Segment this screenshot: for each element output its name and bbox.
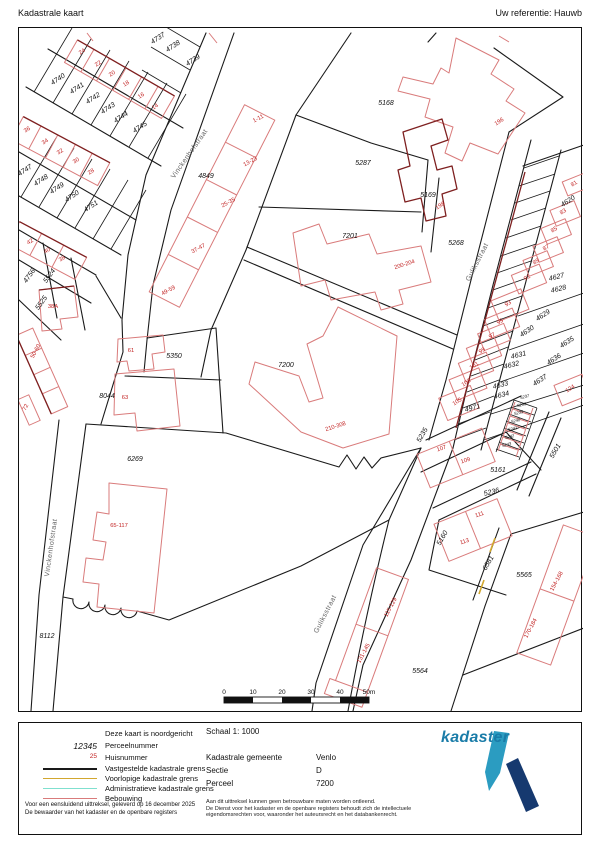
house-number-label: 99 <box>478 347 487 356</box>
parcel-number-label: 4636 <box>546 353 563 367</box>
huisnummer-sample: 25 <box>29 753 97 760</box>
page-title: Kadastrale kaart <box>18 8 84 18</box>
parcel-number-label: 4620 <box>560 195 577 209</box>
house-number-label: 25-35 <box>221 197 237 209</box>
parcel-number-label: 5238 <box>517 401 528 408</box>
administratieve-grens-label: Administratieve kadastrale grens <box>105 784 214 793</box>
cadastral-map-page: Kadastrale kaart Uw referentie: Hauwb <box>0 0 600 845</box>
house-number-label: 91 <box>523 274 532 283</box>
house-number-label: 83 <box>559 208 568 217</box>
parcel-number-label: 4635 <box>559 336 576 350</box>
street-name-label: Guliksstraat <box>465 242 490 282</box>
house-number-label: 111 <box>475 511 485 519</box>
house-number-label: 50-60 <box>30 344 42 360</box>
sectie-label: Sectie <box>206 766 228 775</box>
parcel-number-label: 5161 <box>490 467 506 474</box>
parcel-number-label: 5168 <box>378 100 394 107</box>
parcel-number-label: 5240 <box>511 417 522 424</box>
parcel-number-label: 4738 <box>165 40 182 54</box>
house-number-label: 20 <box>108 70 117 79</box>
sectie-value: D <box>316 766 322 775</box>
buildings-layer <box>19 33 583 707</box>
north-note-label: Deze kaart is noordgericht <box>105 729 193 738</box>
parcel-number-label: 4627 <box>548 272 566 283</box>
parcel-number-label: 5564 <box>412 668 428 675</box>
parcel-number-label: 5501 <box>549 443 563 460</box>
kadaster-logo-text: kadaster <box>441 729 509 747</box>
house-number-label: 34 <box>41 137 50 146</box>
map-labels-layer: 4737473847394740474147424743474447454747… <box>19 31 579 696</box>
parcel-number-label: 4637 <box>532 373 550 388</box>
parcel-number-label: 4632 <box>503 360 520 371</box>
parcel-number-label: 6269 <box>127 456 143 463</box>
parcel-number-label: 4745 <box>132 121 149 135</box>
house-number-label: 38A <box>48 304 58 310</box>
house-number-label: 18 <box>122 80 131 89</box>
scalebar-tick-label: 30 <box>307 689 315 696</box>
house-number-label: 154-168 <box>549 571 564 593</box>
house-number-label: 13-23 <box>243 156 259 168</box>
parcel-number-label: 7201 <box>342 233 358 240</box>
disclaimer-text: Aan dit uittreksel kunnen geen betrouwba… <box>206 799 411 819</box>
parcel-number-label: 5169 <box>420 192 436 199</box>
parcel-number-label: 5236 <box>483 487 500 498</box>
parcel-number-label: 4756 <box>22 268 37 285</box>
parcel-number-label: 4741 <box>69 82 86 96</box>
parcel-number-label: 4739 <box>185 54 202 68</box>
scalebar-tick-label: 0 <box>222 689 226 696</box>
house-number-label: 22 <box>94 60 103 69</box>
scale-label: Schaal 1: 1000 <box>206 727 259 736</box>
house-number-label: 61 <box>128 348 134 354</box>
parcel-boundaries-layer <box>19 28 583 711</box>
extract-footer-line2: De bewaarder van het kadaster en de open… <box>25 809 195 817</box>
house-number-label: 24 <box>78 47 87 56</box>
info-row-perceel: Perceel 7200 <box>206 779 233 788</box>
logo-bar-shape <box>506 758 539 812</box>
vastgestelde-grens-line <box>43 768 97 770</box>
parcel-number-label: 4634 <box>493 390 510 401</box>
house-number-label: 72 <box>22 403 30 412</box>
house-number-label: 196 <box>494 117 505 127</box>
house-number-label: 36 <box>23 126 32 135</box>
house-number-label: 42 <box>26 238 35 247</box>
scalebar-tick-label: 20 <box>278 689 286 696</box>
parcel-number-label: 4744 <box>113 111 130 125</box>
house-number-label: 124 <box>565 384 577 395</box>
parcel-number-label: 4737 <box>150 31 168 46</box>
parcel-number-label: 4742 <box>85 92 102 106</box>
perceelnummer-label: Perceelnummer <box>105 741 158 750</box>
scalebar-tick-label: 10 <box>249 689 257 696</box>
voorlopige-grens-line <box>43 778 97 779</box>
parcel-number-label: 4630 <box>519 325 536 339</box>
perceel-value: 7200 <box>316 779 334 788</box>
parcel-number-label: 5241 <box>508 425 518 432</box>
disclaimer-line2: De Dienst voor het kadaster en de openba… <box>206 806 411 813</box>
extract-footer-line1: Voor een eensluidend uittreksel, gelever… <box>25 801 195 809</box>
house-number-label: 1-11 <box>252 114 265 125</box>
house-number-label: 93 <box>504 300 513 309</box>
parcel-number-label: 4750 <box>64 190 81 204</box>
parcel-number-label: 5239 <box>514 409 525 416</box>
info-row-gemeente: Kadastrale gemeente Venlo <box>206 753 282 762</box>
cadastral-map: 4737473847394740474147424743474447454747… <box>19 28 583 713</box>
house-number-label: 109 <box>460 457 471 466</box>
parcel-number-label: 8044 <box>99 393 115 400</box>
extract-footer: Voor een eensluidend uittreksel, gelever… <box>25 801 195 817</box>
parcel-number-label: 4971 <box>464 403 481 414</box>
house-number-label: 210-308 <box>325 421 347 433</box>
parcel-number-label: 7200 <box>278 362 294 369</box>
house-number-label: 87 <box>542 244 551 253</box>
house-number-label: 38 <box>58 255 67 264</box>
bebouwing-line <box>43 798 97 799</box>
parcel-number-label: 5235 <box>416 427 430 444</box>
house-number-label: 65-117 <box>110 523 128 529</box>
house-number-label: 200-204 <box>394 259 417 272</box>
house-number-label: 37-47 <box>191 243 207 255</box>
parcel-number-label: 5268 <box>448 240 464 247</box>
map-frame: 4737473847394740474147424743474447454747… <box>18 27 582 712</box>
parcel-number-label: 5160 <box>436 530 450 547</box>
gemeente-label: Kadastrale gemeente <box>206 753 282 762</box>
parcel-number-label: 8112 <box>39 633 54 640</box>
scalebar-tick-label: 40 <box>336 689 344 696</box>
parcel-number-label: 5237 <box>520 393 531 400</box>
parcel-number-label: 6581 <box>482 555 496 572</box>
gemeente-value: Venlo <box>316 753 336 762</box>
house-number-label: 16 <box>137 92 146 101</box>
parcel-number-label: 5565 <box>516 572 532 579</box>
huisnummer-label: Huisnummer <box>105 753 148 762</box>
legend-box: Deze kaart is noordgericht 12345 Perceel… <box>18 722 582 835</box>
house-number-label: 85 <box>550 226 559 235</box>
parcel-number-label: 4747 <box>19 163 35 178</box>
administratieve-grens-line <box>43 788 97 789</box>
parcel-number-label: 4629 <box>535 309 552 323</box>
reference-label: Uw referentie: Hauwb <box>495 8 582 18</box>
house-number-label: 14 <box>151 102 160 111</box>
house-number-label: 113 <box>459 538 470 547</box>
parcel-number-label: 4751 <box>83 200 100 214</box>
kadaster-logo: kadaster <box>423 725 573 829</box>
house-number-label: 28 <box>87 168 96 177</box>
parcel-number-label: 4849 <box>198 173 214 180</box>
scalebar-tick-label: 50m <box>363 689 376 696</box>
parcel-number-label: 5287 <box>355 160 372 167</box>
voorlopige-grens-label: Voorlopige kadastrale grens <box>105 774 198 783</box>
disclaimer-line3: eigendomsrechten voor, waaronder het aut… <box>206 812 411 819</box>
vastgestelde-grens-label: Vastgestelde kadastrale grens <box>105 764 205 773</box>
house-number-label: 30 <box>72 157 81 166</box>
disclaimer-line1: Aan dit uittreksel kunnen geen betrouwba… <box>206 799 411 806</box>
parcel-number-label: 4743 <box>100 102 117 116</box>
house-number-label: 63 <box>122 395 128 401</box>
parcel-number-label: 5350 <box>166 353 182 360</box>
parcel-number-label: 4631 <box>510 350 527 361</box>
house-number-label: 49-59 <box>161 285 177 297</box>
house-number-label: 32 <box>56 148 65 157</box>
house-number-label: 81 <box>570 180 579 189</box>
house-number-label: 115-129 <box>384 597 399 618</box>
perceel-label: Perceel <box>206 779 233 788</box>
scale-bar <box>224 697 369 703</box>
perceelnummer-sample: 12345 <box>29 741 97 751</box>
parcel-number-label: 5243 <box>502 441 513 448</box>
parcel-number-label: 5242 <box>505 433 516 440</box>
parcel-number-label: 4628 <box>550 284 567 295</box>
parcel-number-label: 4748 <box>33 174 50 188</box>
parcel-number-label: 4749 <box>49 182 66 196</box>
info-row-sectie: Sectie D <box>206 766 228 775</box>
